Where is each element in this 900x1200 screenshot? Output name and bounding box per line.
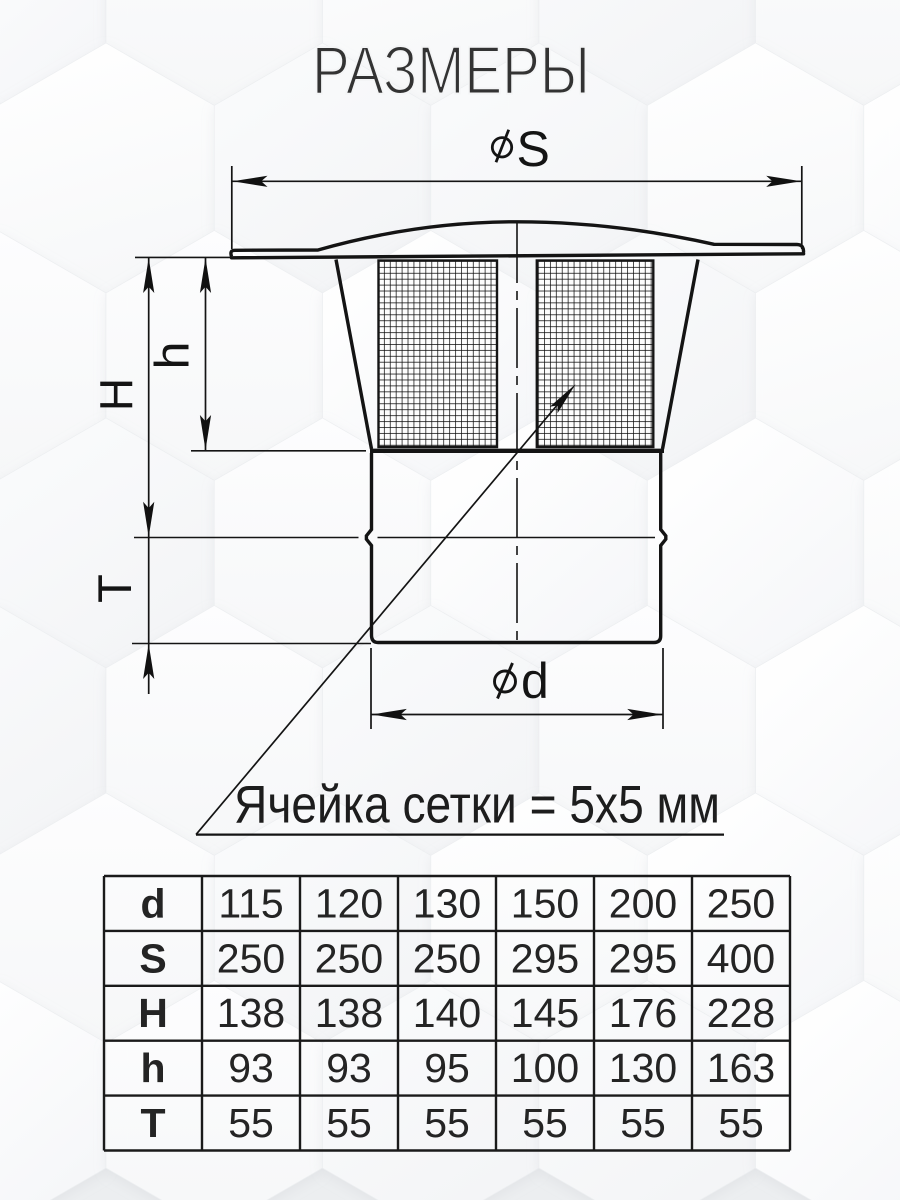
svg-text:S: S bbox=[517, 121, 550, 177]
svg-text:115: 115 bbox=[218, 881, 283, 927]
svg-text:55: 55 bbox=[620, 1100, 666, 1146]
svg-text:100: 100 bbox=[511, 1045, 579, 1091]
svg-text:130: 130 bbox=[413, 881, 481, 927]
svg-text:95: 95 bbox=[424, 1045, 470, 1091]
svg-text:d: d bbox=[521, 653, 549, 709]
svg-text:55: 55 bbox=[718, 1100, 764, 1146]
svg-text:55: 55 bbox=[424, 1100, 470, 1146]
svg-text:250: 250 bbox=[707, 881, 775, 927]
svg-text:138: 138 bbox=[217, 990, 285, 1036]
svg-text:Ячейка сетки = 5х5 мм: Ячейка сетки = 5х5 мм bbox=[234, 776, 720, 835]
svg-text:140: 140 bbox=[413, 990, 481, 1036]
svg-text:228: 228 bbox=[707, 990, 775, 1036]
svg-text:55: 55 bbox=[228, 1100, 274, 1146]
svg-text:H: H bbox=[138, 990, 168, 1036]
svg-text:h: h bbox=[147, 342, 200, 370]
svg-text:200: 200 bbox=[609, 881, 677, 927]
svg-text:55: 55 bbox=[522, 1100, 568, 1146]
svg-text:d: d bbox=[140, 881, 165, 927]
svg-text:93: 93 bbox=[326, 1045, 372, 1091]
svg-text:T: T bbox=[88, 574, 141, 603]
svg-text:250: 250 bbox=[315, 935, 383, 981]
svg-text:T: T bbox=[140, 1100, 165, 1146]
svg-text:176: 176 bbox=[609, 990, 677, 1036]
svg-text:250: 250 bbox=[413, 935, 481, 981]
svg-text:150: 150 bbox=[511, 881, 579, 927]
svg-text:120: 120 bbox=[315, 881, 383, 927]
svg-text:H: H bbox=[91, 378, 143, 411]
svg-text:145: 145 bbox=[511, 990, 579, 1036]
svg-text:163: 163 bbox=[707, 1045, 775, 1091]
svg-text:400: 400 bbox=[707, 935, 775, 981]
svg-text:295: 295 bbox=[511, 935, 579, 981]
svg-text:h: h bbox=[140, 1045, 165, 1091]
svg-text:РАЗМЕРЫ: РАЗМЕРЫ bbox=[312, 33, 590, 109]
svg-text:250: 250 bbox=[217, 935, 285, 981]
svg-text:130: 130 bbox=[609, 1045, 677, 1091]
svg-text:295: 295 bbox=[609, 935, 677, 981]
svg-text:93: 93 bbox=[228, 1045, 274, 1091]
svg-text:S: S bbox=[139, 935, 166, 981]
svg-text:138: 138 bbox=[315, 990, 383, 1036]
svg-text:55: 55 bbox=[326, 1100, 372, 1146]
